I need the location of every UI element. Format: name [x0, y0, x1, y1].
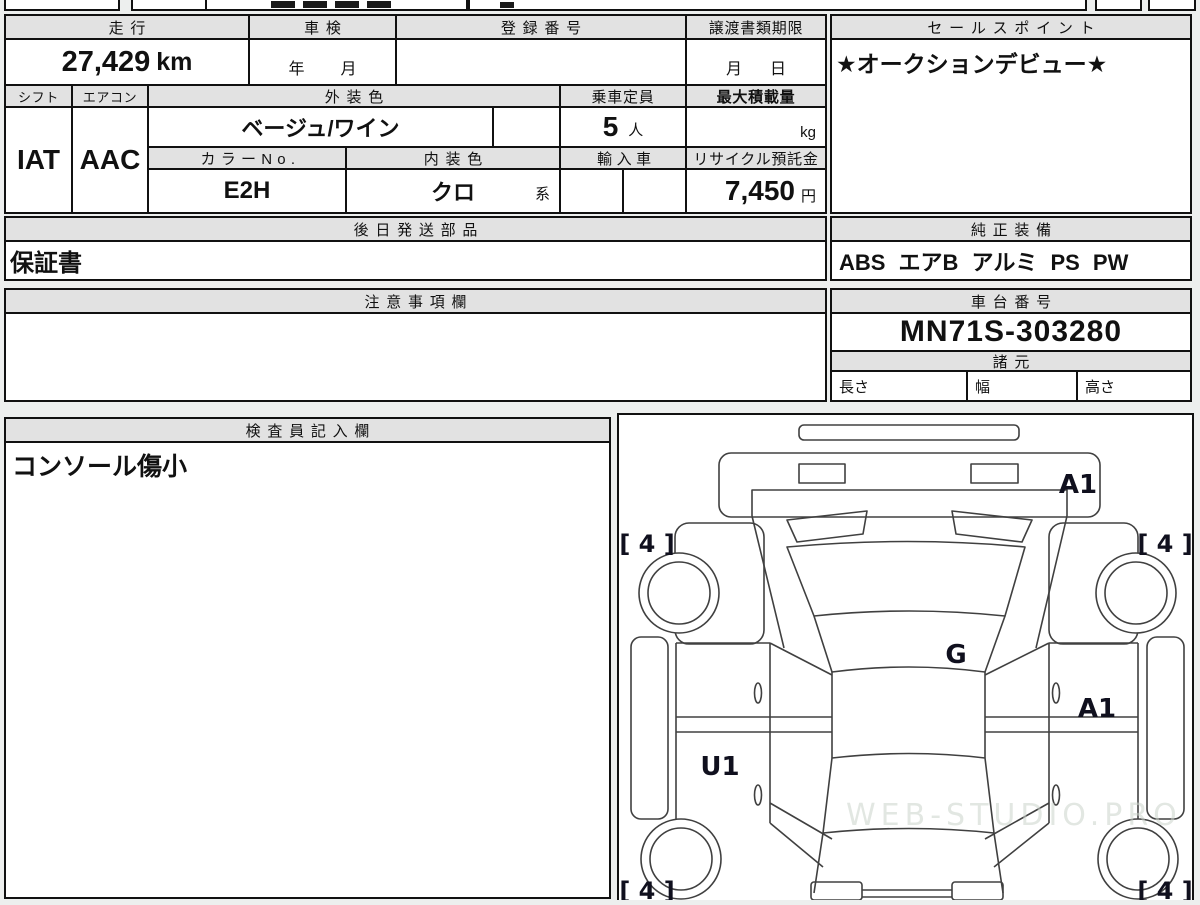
specs-header: 諸元 — [832, 352, 1190, 372]
interior-color-value: クロ 系 — [347, 170, 561, 212]
interior-color-header: 内装色 — [347, 148, 561, 170]
registration-value — [397, 40, 687, 86]
capacity-value: 5人 — [561, 108, 687, 148]
windshield-mark: G — [945, 640, 966, 670]
roof-sides — [832, 672, 985, 758]
car-damage-diagram: WEB-STUDIO.PRO A1 [ 4 ] [ 4 ] G U1 A1 [ … — [619, 415, 1192, 900]
recycle-deposit-unit: 円 — [801, 177, 816, 206]
right-headlight — [971, 464, 1018, 483]
imported-header: 輸入車 — [561, 148, 687, 170]
chassis-number-value: MN71S-303280 — [832, 314, 1190, 352]
genuine-equipment-value: ABS エアB アルミ PS PW — [832, 242, 1190, 279]
left-front-door-handle — [755, 683, 762, 703]
max-load-header: 最大積載量 — [687, 86, 825, 108]
mileage-unit: km — [156, 48, 192, 77]
sales-point-box: セールスポイント ★オークションデビュー★ — [830, 14, 1192, 214]
inspector-notes-header: 検査員記入欄 — [6, 419, 609, 443]
front-right-wheel-inner — [1105, 562, 1167, 624]
front-right-tire-mark: [ 4 ] — [1137, 530, 1192, 558]
shift-value: IAT — [6, 108, 73, 212]
cutoff-cell — [468, 0, 1087, 11]
damage-diagram-panel: WEB-STUDIO.PRO A1 [ 4 ] [ 4 ] G U1 A1 [ … — [617, 413, 1194, 900]
wheels — [639, 553, 1178, 899]
mileage-value: 27,429km — [6, 40, 250, 86]
spec-length-label: 長さ — [839, 376, 869, 397]
transfer-month-suffix: 月 — [726, 55, 742, 79]
left-door-mark: U1 — [700, 752, 739, 782]
interior-color-text: クロ — [431, 175, 475, 207]
right-wiper-area — [952, 511, 1032, 542]
front-top-strip — [799, 425, 1019, 440]
rear-bumper-center-lines — [862, 890, 952, 897]
inspection-header: 車検 — [250, 16, 397, 40]
right-front-door-handle — [1053, 683, 1060, 703]
rear-hatch-sides — [814, 833, 1003, 893]
color-no-value: E2H — [149, 170, 347, 212]
cautions-header: 注意事項欄 — [6, 290, 825, 314]
right-rear-panel-mark: A1 — [1078, 694, 1116, 724]
shipped-later-parts-box: 後日発送部品 保証書 — [4, 216, 827, 281]
exterior-color-extra-cell — [494, 108, 561, 148]
cautions-box: 注意事項欄 — [4, 288, 827, 402]
rear-bumper-left — [811, 882, 862, 900]
sales-point-value: ★オークションデビュー★ — [832, 40, 1190, 212]
shipped-later-parts-value: 保証書 — [6, 242, 825, 279]
exterior-color-value: ベージュ/ワイン — [149, 108, 494, 148]
aircon-header: エアコン — [73, 86, 149, 108]
transfer-deadline-value: 月日 — [687, 40, 825, 86]
sales-point-header: セールスポイント — [832, 16, 1190, 40]
inspector-notes-box: 検査員記入欄 コンソール傷小 — [4, 417, 611, 899]
auction-sheet-page: { "fields": { "mileage": {"label":"走行","… — [0, 0, 1200, 900]
left-sill-panel — [631, 637, 668, 819]
recycle-deposit-value: 7,450円 — [687, 170, 825, 212]
spec-length-cell: 長さ — [832, 372, 968, 400]
capacity-header: 乗車定員 — [561, 86, 687, 108]
shift-header: シフト — [6, 86, 73, 108]
left-headlight — [799, 464, 845, 483]
genuine-equipment-box: 純正装備 ABS エアB アルミ PS PW — [830, 216, 1192, 281]
cutoff-cell — [1148, 0, 1196, 11]
roof-front-band — [814, 616, 1005, 672]
registration-header: 登録番号 — [397, 16, 687, 40]
rear-bumper-right — [952, 882, 1003, 900]
color-no-header: カラーNo. — [149, 148, 347, 170]
capacity-number: 5 — [603, 111, 619, 143]
front-panel-mark: A1 — [1059, 470, 1097, 500]
spec-width-label: 幅 — [975, 376, 990, 397]
cutoff-cell — [4, 0, 120, 11]
max-load-value: kg — [687, 108, 825, 148]
chassis-number-header: 車台番号 — [832, 290, 1190, 314]
chassis-specs-box: 車台番号 MN71S-303280 諸元 長さ 幅 高さ — [830, 288, 1192, 402]
spec-width-cell: 幅 — [968, 372, 1078, 400]
cutoff-cell — [1095, 0, 1142, 11]
front-bumper — [719, 453, 1100, 517]
watermark-text: WEB-STUDIO.PRO — [846, 798, 1182, 833]
shipped-later-parts-header: 後日発送部品 — [6, 218, 825, 242]
rear-left-tire-mark: [ 4 ] — [619, 877, 674, 900]
cautions-value — [6, 314, 825, 400]
recycle-deposit-header: リサイクル預託金 — [687, 148, 825, 170]
spec-height-label: 高さ — [1085, 376, 1115, 397]
aircon-value: AAC — [73, 108, 149, 212]
cutoff-cell — [131, 0, 207, 11]
transfer-day-suffix: 日 — [770, 55, 786, 79]
cutoff-cell — [205, 0, 468, 11]
inspection-value: 年月 — [250, 40, 397, 86]
spec-height-cell: 高さ — [1078, 372, 1190, 400]
imported-cell-2 — [624, 170, 687, 212]
inspector-notes-value: コンソール傷小 — [6, 443, 609, 897]
recycle-deposit-number: 7,450 — [725, 175, 795, 207]
mileage-header: 走行 — [6, 16, 250, 40]
hood-side-lines — [752, 516, 1067, 648]
vehicle-info-table: 走行 車検 登録番号 譲渡書類期限 27,429km 年月 月日 シフト エアコ… — [4, 14, 827, 214]
rear-right-tire-mark: [ 4 ] — [1137, 877, 1192, 900]
imported-cell-1 — [561, 170, 624, 212]
inspection-month-suffix: 月 — [341, 55, 357, 79]
interior-color-suffix: 系 — [535, 183, 550, 204]
genuine-equipment-header: 純正装備 — [832, 218, 1190, 242]
transfer-deadline-header: 譲渡書類期限 — [687, 16, 825, 40]
front-left-wheel-inner — [648, 562, 710, 624]
front-left-tire-mark: [ 4 ] — [619, 530, 674, 558]
right-sill-panel — [1147, 637, 1184, 819]
windshield — [787, 542, 1025, 617]
inspection-year-suffix: 年 — [288, 55, 304, 79]
mileage-number: 27,429 — [62, 46, 151, 79]
exterior-color-header: 外装色 — [149, 86, 561, 108]
front-bumper-inner-line — [752, 490, 1067, 516]
left-rear-door-handle — [755, 785, 762, 805]
capacity-unit: 人 — [628, 119, 643, 146]
left-wiper-area — [787, 511, 867, 542]
